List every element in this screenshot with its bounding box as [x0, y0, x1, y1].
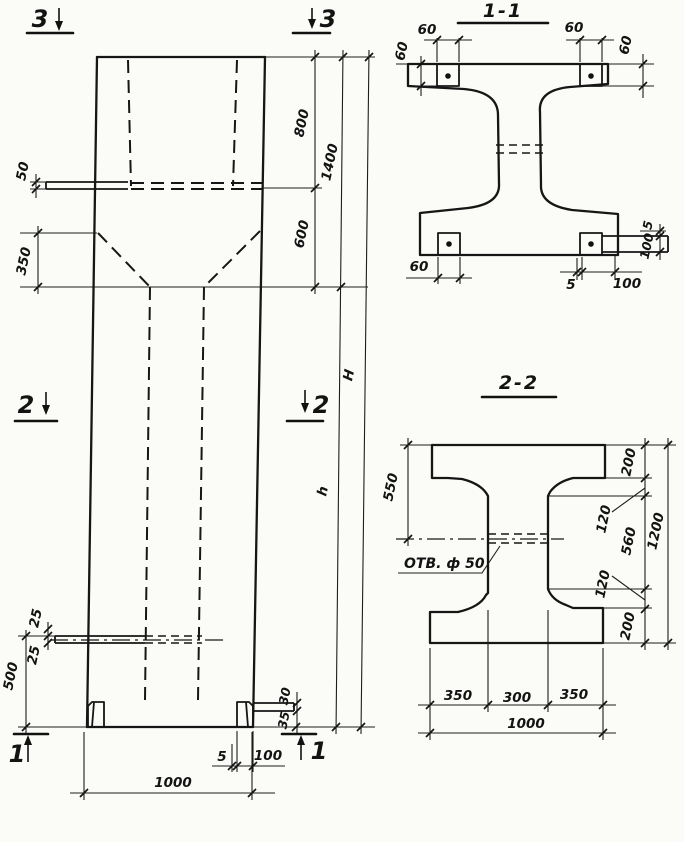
section-2-2-outline — [430, 445, 605, 643]
dim-550-label: 550 — [380, 472, 402, 503]
marker-2-right-label: 2 — [313, 391, 330, 419]
dim-5-label: 5 — [217, 749, 226, 765]
marker-1-right-label: 1 — [311, 737, 328, 765]
dim-60-bottom-left: 60 — [410, 259, 429, 275]
dim-h-label: h — [314, 485, 332, 498]
section-2-2-dimension-lines — [398, 438, 676, 740]
dim-60-right: 60 — [616, 34, 636, 56]
dim-500-label: 500 — [0, 661, 22, 692]
section-1-1-outline — [408, 64, 618, 255]
section-marker-2-right: 2 — [287, 390, 329, 421]
section-arrow-up-icon — [297, 735, 305, 745]
marker-3-left-label: 3 — [32, 5, 49, 33]
embedded-plates — [437, 64, 668, 255]
dim-100-label: 100 — [254, 748, 282, 764]
marker-2-left-label: 2 — [18, 391, 35, 419]
right-foot — [237, 702, 253, 727]
column-outline — [46, 57, 294, 727]
dim-50-label: 50 — [13, 160, 33, 182]
dim-560-label: 560 — [618, 526, 640, 557]
section-1-1-title: 1-1 — [483, 0, 523, 22]
elevation-dimension-ticks — [22, 53, 373, 797]
dim-60-top-left: 60 — [418, 22, 437, 38]
section-2-2-title: 2-2 — [499, 372, 539, 394]
section-arrow-down-icon — [42, 405, 50, 415]
dim-100-bottom: 100 — [613, 276, 641, 292]
dim-60-top-right: 60 — [565, 20, 584, 36]
drawing-sheet: 50 350 800 1400 600 h H 25 25 500 30 35 … — [0, 0, 684, 842]
dim-120-top-label: 120 — [593, 504, 615, 535]
anchor-dot — [446, 241, 452, 247]
dim-H-label: H — [340, 367, 358, 382]
dim-25b-label: 25 — [24, 644, 44, 666]
section-marker-3-left: 3 — [27, 5, 73, 33]
dim-60-left: 60 — [392, 40, 412, 62]
section-2-2-view: 2-2 550 200 120 560 120 200 12 — [380, 372, 676, 740]
dim-25a-label: 25 — [26, 607, 46, 629]
dim-1400-label: 1400 — [318, 142, 341, 182]
ledge-plate — [46, 182, 128, 189]
left-foot — [88, 702, 104, 727]
section-1-1-view: 1-1 60 — [392, 0, 668, 293]
section-marker-3-right: 3 — [293, 5, 336, 33]
web-hole — [396, 534, 564, 543]
section-arrow-down-icon — [308, 19, 316, 29]
technical-drawing: 50 350 800 1400 600 h H 25 25 500 30 35 … — [0, 0, 684, 842]
dim-600-label: 600 — [291, 219, 313, 250]
anchor-dot — [588, 73, 594, 79]
elevation-hidden-lines — [50, 60, 262, 700]
marker-1-left-label: 1 — [9, 740, 26, 768]
section-arrow-down-icon — [55, 21, 63, 31]
section-arrow-down-icon — [301, 403, 309, 413]
hole-diameter-label: ОТВ. ф 50 — [404, 556, 485, 572]
dim-350-right-label: 350 — [560, 687, 588, 703]
marker-3-right-label: 3 — [320, 5, 337, 33]
dim-200-bottom-label: 200 — [617, 611, 639, 642]
dim-800-label: 800 — [291, 108, 313, 139]
web-hole-hidden — [496, 145, 546, 153]
anchor-dot — [445, 73, 451, 79]
section-marker-2-left: 2 — [15, 391, 57, 421]
dim-5-bottom: 5 — [566, 277, 575, 293]
section-marker-1-left: 1 — [9, 734, 48, 768]
section-marker-1-right: 1 — [282, 734, 327, 765]
dim-1000-label: 1000 — [154, 775, 192, 791]
dim-1000-bottom-label: 1000 — [507, 716, 545, 732]
dim-350-left-label: 350 — [444, 688, 472, 704]
dim-300-label: 300 — [503, 690, 531, 706]
dim-5-right: 5 — [639, 219, 656, 231]
side-rod — [55, 636, 145, 643]
anchor-dot — [588, 241, 594, 247]
dim-120-bottom-label: 120 — [592, 569, 614, 600]
dim-200-top-label: 200 — [618, 447, 640, 478]
dim-350-label: 350 — [13, 246, 35, 277]
dim-1200-label: 1200 — [644, 511, 667, 551]
elevation-view: 50 350 800 1400 600 h H 25 25 500 30 35 … — [0, 5, 375, 800]
